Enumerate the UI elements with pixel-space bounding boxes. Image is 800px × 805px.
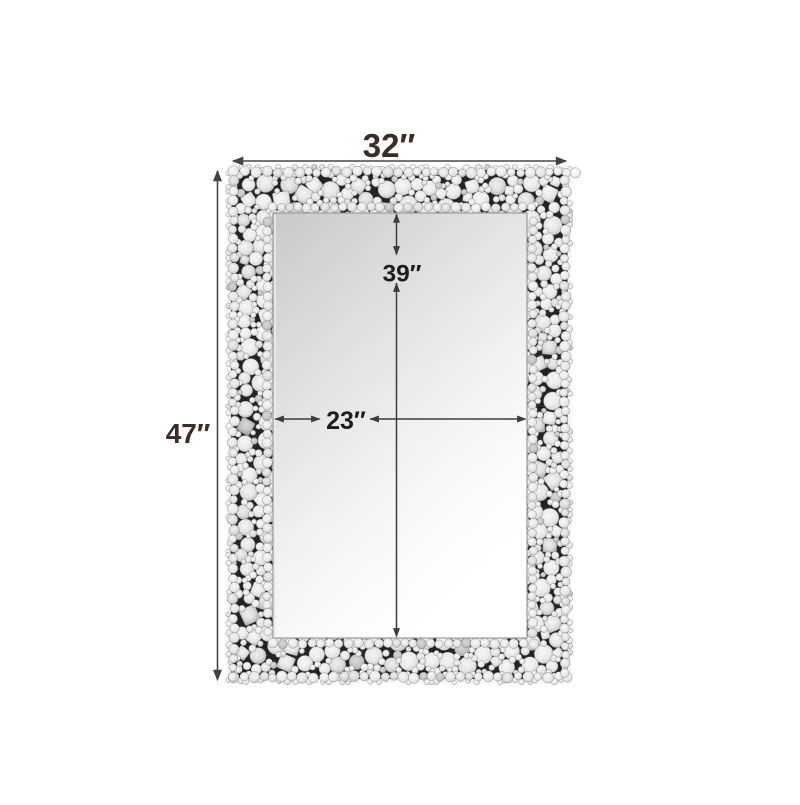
svg-text:23″: 23″ — [326, 407, 366, 435]
svg-text:32″: 32″ — [363, 127, 416, 164]
svg-text:47″: 47″ — [166, 418, 211, 449]
svg-text:39″: 39″ — [383, 261, 422, 288]
